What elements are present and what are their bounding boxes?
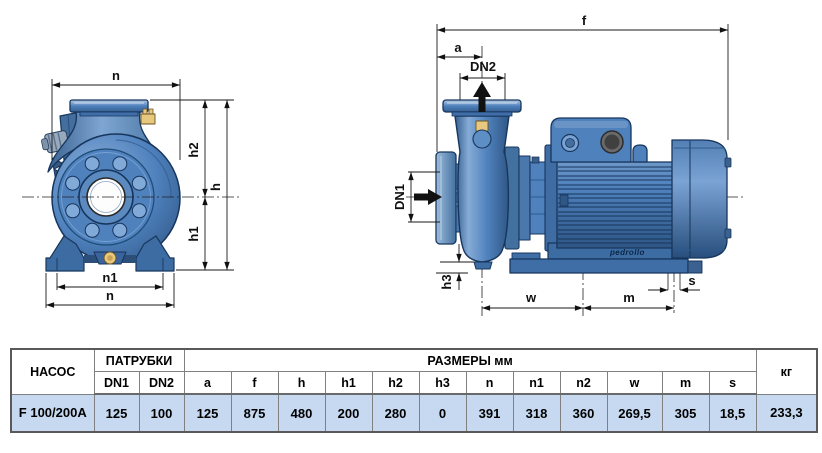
brand-logo-text: pedrollo bbox=[609, 248, 645, 257]
casing-bottom-tip bbox=[474, 262, 492, 269]
header-n: n bbox=[466, 372, 513, 395]
base-plate bbox=[510, 259, 688, 273]
gauge-boss bbox=[473, 130, 491, 148]
dim-label-m: m bbox=[623, 290, 635, 305]
header-n2: n2 bbox=[560, 372, 607, 395]
fan-cover-clip bbox=[725, 158, 731, 167]
dim-label-n1: n1 bbox=[102, 270, 117, 285]
cell-n2: 360 bbox=[560, 394, 607, 432]
header-dimensions: РАЗМЕРЫ мм bbox=[184, 349, 756, 372]
bracket-bolt bbox=[532, 157, 539, 163]
cell-dn2: 100 bbox=[139, 394, 184, 432]
discharge-flange-front bbox=[70, 100, 148, 112]
dimensions-table: НАСОС ПАТРУБКИ РАЗМЕРЫ мм кг DN1 DN2 a f… bbox=[10, 348, 818, 433]
dim-label-w: w bbox=[525, 290, 537, 305]
cable-entry-light-center bbox=[566, 139, 575, 148]
base-left-tab bbox=[512, 253, 540, 259]
cell-n: 391 bbox=[466, 394, 513, 432]
table-header-row-groups: НАСОС ПАТРУБКИ РАЗМЕРЫ мм кг bbox=[11, 349, 817, 372]
dim-label-dn2: DN2 bbox=[470, 59, 496, 74]
dim-label-n-top: n bbox=[112, 68, 120, 83]
cell-h3: 0 bbox=[419, 394, 466, 432]
pump-datasheet-page: n h2 h h1 n1 n bbox=[0, 0, 822, 453]
cell-a: 125 bbox=[184, 394, 231, 432]
header-weight: кг bbox=[756, 349, 817, 394]
header-h3: h3 bbox=[419, 372, 466, 395]
terminal-box-lid bbox=[554, 121, 628, 128]
dim-label-f: f bbox=[582, 13, 587, 28]
header-m: m bbox=[662, 372, 709, 395]
cell-h1: 200 bbox=[325, 394, 372, 432]
cell-h2: 280 bbox=[372, 394, 419, 432]
header-w: w bbox=[607, 372, 662, 395]
technical-drawing: n h2 h h1 n1 n bbox=[0, 0, 822, 345]
cell-model: F 100/200A bbox=[11, 394, 94, 432]
cell-dn1: 125 bbox=[94, 394, 139, 432]
header-dn2: DN2 bbox=[139, 372, 184, 395]
discharge-flange-step bbox=[452, 112, 512, 116]
header-dn1: DN1 bbox=[94, 372, 139, 395]
fan-cover bbox=[672, 140, 727, 258]
header-h: h bbox=[278, 372, 325, 395]
header-pump: НАСОС bbox=[11, 349, 94, 394]
cell-weight: 233,3 bbox=[756, 394, 817, 432]
header-a: a bbox=[184, 372, 231, 395]
dim-label-s: s bbox=[688, 273, 695, 288]
header-n1: n1 bbox=[513, 372, 560, 395]
motor-body bbox=[557, 162, 673, 248]
dim-label-h2: h2 bbox=[186, 142, 201, 157]
drain-plug-center bbox=[107, 255, 113, 261]
cell-m: 305 bbox=[662, 394, 709, 432]
dim-label-dn1: DN1 bbox=[392, 184, 407, 210]
fan-cover-clip bbox=[725, 229, 731, 238]
pump-front-view: n h2 h h1 n1 n bbox=[22, 68, 240, 308]
cell-s: 18,5 bbox=[709, 394, 756, 432]
flange-step bbox=[80, 112, 138, 116]
seal-housing bbox=[519, 156, 530, 240]
table-row: F 100/200A 125 100 125 875 480 200 280 0… bbox=[11, 394, 817, 432]
motor-nameplate bbox=[560, 195, 568, 206]
header-h1: h1 bbox=[325, 372, 372, 395]
dim-label-a: a bbox=[454, 40, 462, 55]
pump-side-view: pedrollo bbox=[392, 13, 744, 316]
header-ports: ПАТРУБКИ bbox=[94, 349, 184, 372]
cable-entry-dark-center bbox=[605, 135, 620, 150]
cell-h: 480 bbox=[278, 394, 325, 432]
dim-label-h1: h1 bbox=[186, 226, 201, 241]
cell-w: 269,5 bbox=[607, 394, 662, 432]
header-f: f bbox=[231, 372, 278, 395]
header-s: s bbox=[709, 372, 756, 395]
dim-label-h: h bbox=[208, 183, 223, 191]
header-h2: h2 bbox=[372, 372, 419, 395]
cell-n1: 318 bbox=[513, 394, 560, 432]
fan-side-foot bbox=[688, 261, 702, 273]
dim-label-h3: h3 bbox=[439, 274, 454, 289]
dim-label-n-bottom: n bbox=[106, 288, 114, 303]
lifting-eye bbox=[633, 145, 647, 162]
table-header-row-sub: DN1 DN2 a f h h1 h2 h3 n n1 n2 w m s bbox=[11, 372, 817, 395]
cell-f: 875 bbox=[231, 394, 278, 432]
